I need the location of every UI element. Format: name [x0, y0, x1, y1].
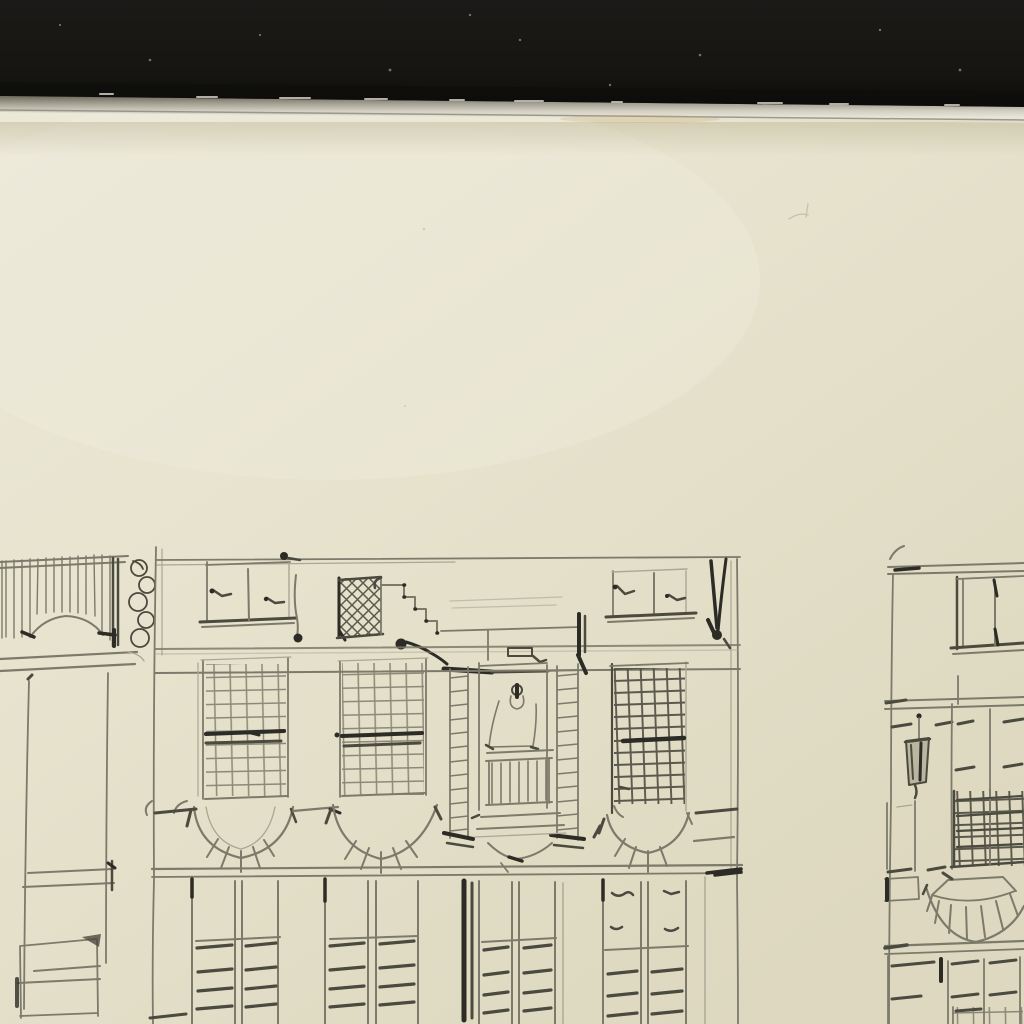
- sash-window-2: [335, 658, 429, 797]
- sash-window-1: [198, 657, 291, 799]
- sketch-canvas: [0, 0, 1024, 1024]
- lattice-window: [337, 577, 383, 640]
- cover-band: [0, 0, 1024, 107]
- sketchbook-photo: [0, 0, 1024, 1024]
- sash-window-3: [610, 662, 688, 817]
- right-grid-window: [951, 789, 1024, 867]
- edge-stain: [560, 115, 720, 123]
